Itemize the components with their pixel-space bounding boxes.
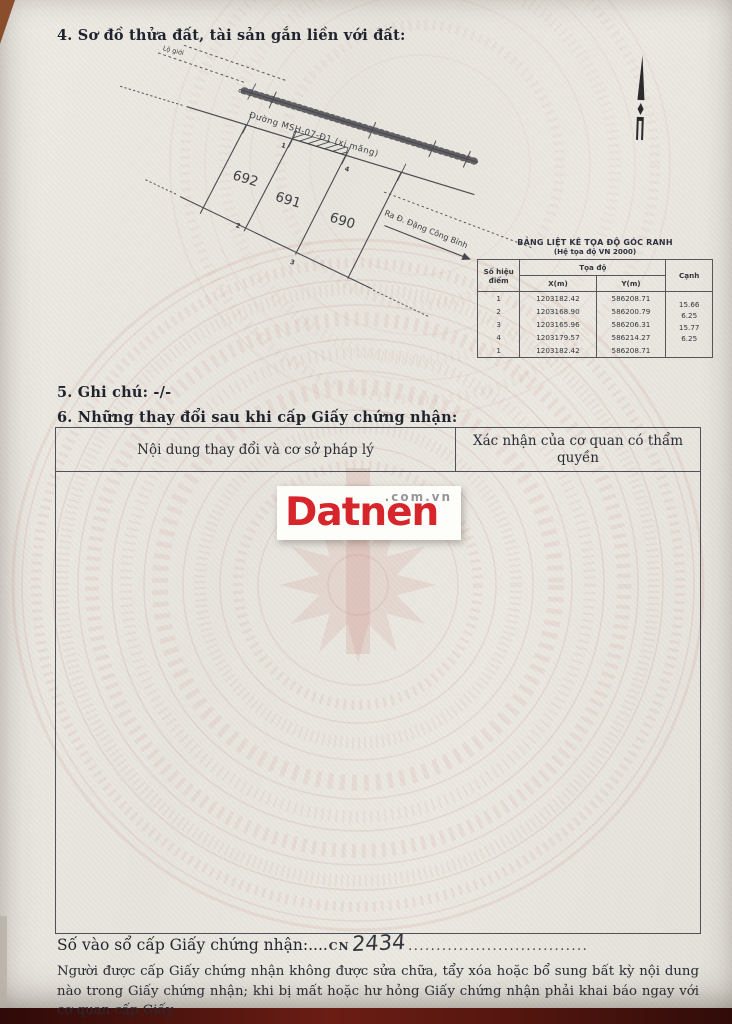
rear-boundary-ext-right (371, 290, 431, 316)
coord-table-block: BẢNG LIỆT KÊ TỌA ĐỘ GÓC RANH (Hệ tọa độ … (477, 238, 713, 358)
road-bottom-edge-dotted (120, 82, 185, 106)
edge-value: 6.25 (666, 310, 712, 321)
edge-value: 15.66 (666, 299, 712, 310)
corner-point-3: 3 (289, 258, 296, 267)
col-y-header: Y(m) (596, 276, 666, 292)
point-id: 1 (478, 344, 520, 358)
section4-title: 4. Sơ đồ thửa đất, tài sản gắn liền với … (57, 27, 406, 44)
coord-table: Số hiệu điểm Tọa độ Cạnh X(m) Y(m) 1 120… (477, 259, 713, 358)
brand-suffix: .com.vn (385, 490, 452, 504)
parcel-690-label: 690 (328, 210, 357, 233)
photo-edge-left (0, 916, 7, 1008)
changes-table-body (56, 472, 700, 932)
corner-point-4: 4 (344, 165, 351, 174)
registry-prefix: CN (329, 940, 350, 953)
coord-x: 1203182.42 (520, 344, 596, 358)
point-id: 4 (478, 331, 520, 344)
direction-label: Ra Đ. Đặng Công Bỉnh (383, 208, 470, 252)
boundary-label-1: Lộ giới (184, 45, 207, 47)
road-label: Đường MSH-07-Đ1 (xi măng) (248, 110, 380, 160)
section6-title: 6. Những thay đổi sau khi cấp Giấy chứng… (57, 409, 457, 426)
page-content: 4. Sơ đồ thửa đất, tài sản gắn liền với … (0, 0, 732, 1024)
coord-y: 586214.27 (596, 331, 666, 344)
boundary-line-2 (158, 53, 248, 83)
coord-y: 586206.31 (596, 318, 666, 331)
parcel-692-label: 692 (231, 168, 260, 191)
col-x-header: X(m) (520, 276, 596, 292)
registry-label: Số vào sổ cấp Giấy chứng nhận:.... (57, 936, 328, 954)
edge-lengths: 15.66 6.25 15.77 6.25 (666, 292, 713, 358)
point-id: 3 (478, 318, 520, 331)
parcel-691-label: 691 (273, 189, 302, 212)
photo-corner-background (0, 0, 15, 44)
coord-y: 586208.71 (596, 344, 666, 358)
changes-col-content-header: Nội dung thay đổi và cơ sở pháp lý (56, 428, 455, 471)
rear-boundary-ext-left (144, 180, 178, 195)
coord-x: 1203179.57 (520, 331, 596, 344)
coord-table-title: BẢNG LIỆT KÊ TỌA ĐỘ GÓC RANH (477, 238, 713, 247)
changes-table-header: Nội dung thay đổi và cơ sở pháp lý Xác n… (56, 428, 700, 472)
coord-x: 1203165.96 (520, 318, 596, 331)
north-arrow-icon (628, 53, 654, 143)
col-edge-header: Cạnh (666, 260, 713, 292)
boundary-line-1 (178, 45, 287, 81)
table-row: 1 1203182.42 586208.71 15.66 6.25 15.77 … (478, 292, 713, 306)
footer-note: Người được cấp Giấy chứng nhận không đượ… (57, 962, 699, 1021)
section5-title: 5. Ghi chú: -/- (57, 384, 171, 401)
edge-value: 15.77 (666, 322, 712, 333)
coord-x: 1203182.42 (520, 292, 596, 306)
coord-y: 586200.79 (596, 305, 666, 318)
col-coord-header: Tọa độ (520, 260, 666, 276)
point-id: 1 (478, 292, 520, 306)
corner-point-2: 2 (235, 221, 242, 230)
registry-line: Số vào sổ cấp Giấy chứng nhận:....CN2434… (57, 931, 588, 955)
col-point-header: Số hiệu điểm (478, 260, 520, 292)
changes-col-confirm-header: Xác nhận của cơ quan có thẩm quyền (455, 428, 700, 471)
registry-number-handwritten: 2434 (351, 930, 406, 956)
watermark-logo: Datnen .com.vn (277, 486, 461, 540)
edge-value: 6.25 (666, 333, 712, 344)
coord-y: 586208.71 (596, 292, 666, 306)
point-id: 2 (478, 305, 520, 318)
registry-dotted-leader: ................................ (408, 939, 588, 954)
coord-x: 1203168.90 (520, 305, 596, 318)
coord-table-subtitle: (Hệ tọa độ VN 2000) (477, 247, 713, 256)
corner-point-1: 1 (280, 141, 287, 150)
